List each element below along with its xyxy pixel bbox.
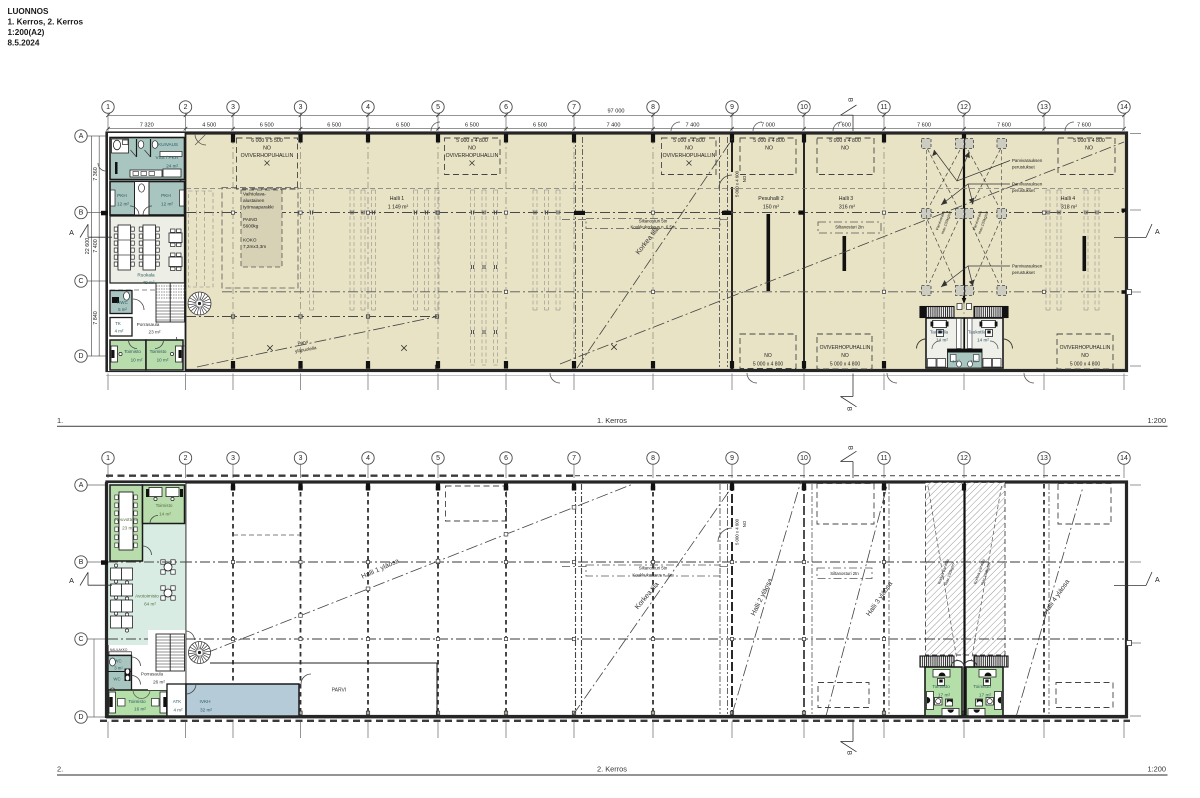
svg-text:5 000 x 4 800: 5 000 x 4 800 [829, 138, 861, 144]
svg-text:7,2mx3,3m: 7,2mx3,3m [243, 244, 266, 249]
svg-text:5 000 x 4 800: 5 000 x 4 800 [1070, 362, 1101, 368]
svg-text:5600kg: 5600kg [243, 224, 259, 229]
svg-text:Toimisto: Toimisto [932, 684, 950, 690]
svg-text:Vaihtolava-: Vaihtolava- [243, 192, 267, 197]
svg-text:12: 12 [960, 455, 968, 462]
svg-text:5 000 x 4 800: 5 000 x 4 800 [753, 138, 785, 144]
svg-text:24 m²: 24 m² [166, 164, 178, 169]
svg-text:PKH: PKH [117, 193, 127, 198]
svg-text:Pesuhalli 2: Pesuhalli 2 [758, 196, 783, 202]
svg-text:Toimisto: Toimisto [124, 349, 141, 354]
svg-text:NO: NO [685, 146, 693, 152]
svg-text:5 000 x 4 800: 5 000 x 4 800 [830, 362, 861, 368]
svg-text:5 000 x 4 600: 5 000 x 4 600 [735, 170, 740, 197]
svg-text:14: 14 [1120, 104, 1128, 111]
svg-text:6 500: 6 500 [260, 122, 274, 128]
svg-text:Ruokala: Ruokala [137, 273, 155, 278]
svg-text:Siltanosturi 5tn: Siltanosturi 5tn [639, 566, 668, 571]
svg-text:Toimisto: Toimisto [973, 684, 991, 690]
svg-text:5 000 x 4 800: 5 000 x 4 800 [753, 362, 784, 368]
svg-text:PARVI: PARVI [332, 688, 347, 694]
svg-text:22 600: 22 600 [85, 238, 91, 255]
svg-text:Porrasaula: Porrasaula [137, 322, 160, 327]
svg-text:1:200: 1:200 [1148, 765, 1167, 774]
svg-text:1 149 m²: 1 149 m² [388, 205, 409, 211]
svg-text:Halli 1: Halli 1 [390, 196, 405, 202]
svg-text:7 600: 7 600 [917, 122, 931, 128]
svg-text:OVIVERHOPUHALLIN: OVIVERHOPUHALLIN [446, 153, 499, 159]
svg-text:13: 13 [1040, 104, 1048, 111]
svg-text:13: 13 [1040, 455, 1048, 462]
svg-text:VSS / PKH: VSS / PKH [156, 155, 178, 160]
svg-text:6 000 x 5 500: 6 000 x 5 500 [251, 138, 283, 144]
svg-text:4 500: 4 500 [202, 122, 216, 128]
svg-text:HWC: HWC [117, 300, 128, 305]
svg-text:6: 6 [504, 104, 508, 111]
svg-text:C: C [79, 278, 84, 285]
svg-text:10 m²: 10 m² [157, 358, 169, 363]
svg-text:23 m²: 23 m² [149, 330, 161, 335]
svg-text:1. Kerros, 2. Kerros: 1. Kerros, 2. Kerros [8, 18, 84, 27]
svg-text:OVIVERHOPUHALLIN: OVIVERHOPUHALLIN [241, 153, 294, 159]
svg-text:5 000 x 4 800: 5 000 x 4 800 [673, 138, 705, 144]
svg-text:NO: NO [764, 353, 772, 359]
svg-text:2: 2 [184, 104, 188, 111]
svg-text:318 m²: 318 m² [1061, 205, 1077, 211]
svg-text:17 m²: 17 m² [979, 693, 992, 699]
svg-text:Halli 3: Halli 3 [839, 196, 854, 202]
svg-text:7 400: 7 400 [93, 239, 99, 253]
svg-text:Siltanosturi 2tn: Siltanosturi 2tn [830, 571, 859, 576]
svg-text:16 m²: 16 m² [134, 707, 146, 712]
svg-text:64 m²: 64 m² [144, 602, 156, 607]
svg-text:9: 9 [730, 455, 734, 462]
svg-text:3: 3 [299, 455, 303, 462]
svg-text:Toimisto: Toimisto [156, 503, 173, 508]
svg-text:OVIVERHOPUHALLIN: OVIVERHOPUHALLIN [1060, 345, 1111, 351]
svg-text:B: B [846, 407, 853, 411]
svg-text:2. Kerros: 2. Kerros [597, 765, 627, 774]
svg-text:Halli 4: Halli 4 [1061, 196, 1076, 202]
svg-text:A: A [69, 228, 74, 237]
svg-text:B: B [847, 446, 854, 450]
svg-text:7 600: 7 600 [997, 122, 1011, 128]
svg-text:2: 2 [184, 455, 188, 462]
svg-text:4: 4 [366, 455, 370, 462]
svg-text:Parvivarauksen: Parvivarauksen [1012, 158, 1043, 163]
svg-text:49 m²: 49 m² [143, 280, 155, 285]
svg-text:B: B [79, 559, 84, 566]
svg-text:NO: NO [841, 353, 849, 359]
svg-text:3: 3 [231, 455, 235, 462]
svg-text:32 m²: 32 m² [200, 708, 212, 713]
svg-text:NO: NO [1085, 146, 1093, 152]
svg-text:NAULAKKO: NAULAKKO [110, 648, 128, 652]
svg-text:5: 5 [436, 455, 440, 462]
svg-text:NO: NO [468, 146, 476, 152]
svg-text:14 m²: 14 m² [936, 338, 948, 343]
svg-text:Neuvottelu: Neuvottelu [115, 517, 137, 522]
svg-text:5 000 x 4 800: 5 000 x 4 800 [456, 138, 488, 144]
svg-text:7 600: 7 600 [837, 122, 851, 128]
svg-text:150 m²: 150 m² [763, 205, 779, 211]
svg-text:7 840: 7 840 [93, 311, 99, 325]
svg-text:14 m²: 14 m² [159, 512, 171, 517]
svg-text:Koukkukorkeus n. 6m: Koukkukorkeus n. 6m [632, 573, 674, 578]
svg-text:Porrasaula: Porrasaula [141, 672, 164, 677]
svg-text:NO: NO [742, 175, 747, 182]
svg-text:10: 10 [800, 104, 808, 111]
svg-text:C: C [79, 636, 84, 643]
svg-text:1:200(A2): 1:200(A2) [8, 28, 45, 37]
svg-text:Siltanosturi 5tn: Siltanosturi 5tn [639, 219, 668, 224]
svg-text:6 500: 6 500 [396, 122, 410, 128]
svg-text:5 m²: 5 m² [118, 307, 127, 312]
svg-text:B: B [847, 98, 854, 102]
svg-text:12: 12 [960, 104, 968, 111]
svg-text:8: 8 [651, 455, 655, 462]
svg-text:7 000: 7 000 [761, 122, 775, 128]
svg-text:11: 11 [880, 104, 887, 111]
svg-text:7: 7 [572, 104, 576, 111]
svg-text:10: 10 [800, 455, 808, 462]
svg-text:alustainen: alustainen [243, 198, 265, 203]
svg-text:4 m²: 4 m² [115, 329, 124, 334]
svg-text:perustukset: perustukset [1012, 188, 1035, 193]
svg-text:316 m²: 316 m² [839, 205, 855, 211]
svg-text:B: B [846, 751, 853, 755]
svg-text:1.: 1. [57, 416, 63, 425]
svg-text:7 400: 7 400 [607, 122, 621, 128]
svg-text:WC: WC [113, 677, 120, 682]
svg-text:NO: NO [765, 146, 773, 152]
svg-text:Toimisto: Toimisto [150, 349, 167, 354]
svg-text:PAINO: PAINO [243, 217, 258, 222]
svg-text:3 m²: 3 m² [114, 666, 123, 671]
svg-text:Toimisto: Toimisto [128, 699, 146, 704]
svg-text:4: 4 [366, 104, 370, 111]
svg-text:B: B [79, 210, 84, 217]
svg-text:9: 9 [730, 104, 734, 111]
svg-text:perustukset: perustukset [1012, 165, 1035, 170]
svg-text:A: A [69, 576, 74, 585]
svg-text:17 m²: 17 m² [938, 693, 951, 699]
svg-text:Avotoimisto: Avotoimisto [135, 594, 159, 599]
svg-text:KOKO: KOKO [243, 238, 257, 243]
svg-text:3: 3 [231, 104, 235, 111]
svg-text:6 500: 6 500 [533, 122, 547, 128]
svg-text:12 m²: 12 m² [117, 202, 129, 207]
svg-text:14 m²: 14 m² [977, 338, 989, 343]
svg-text:5 000 x 4 600: 5 000 x 4 600 [735, 518, 740, 545]
svg-text:7 320: 7 320 [140, 122, 154, 128]
svg-text:12 m²: 12 m² [161, 202, 173, 207]
svg-text:97 000: 97 000 [607, 109, 624, 115]
svg-text:5 000 x 4 800: 5 000 x 4 800 [1073, 138, 1105, 144]
svg-text:8: 8 [651, 104, 655, 111]
svg-text:työmaaparakki: työmaaparakki [243, 205, 273, 210]
svg-text:6 500: 6 500 [327, 122, 341, 128]
svg-text:7 400: 7 400 [686, 122, 700, 128]
svg-text:1: 1 [106, 455, 110, 462]
svg-text:A: A [1155, 577, 1160, 584]
svg-text:11: 11 [880, 455, 887, 462]
svg-text:perustukset: perustukset [1012, 270, 1035, 275]
svg-text:D: D [79, 353, 84, 360]
svg-text:WC: WC [114, 659, 121, 664]
svg-text:A: A [79, 133, 84, 140]
svg-text:7 600: 7 600 [1077, 122, 1091, 128]
svg-text:6 500: 6 500 [465, 122, 479, 128]
svg-text:1:200: 1:200 [1148, 416, 1167, 425]
svg-text:TK: TK [115, 321, 121, 326]
svg-text:D: D [79, 714, 84, 721]
svg-text:14: 14 [1120, 455, 1128, 462]
svg-text:Taukotila: Taukotila [968, 330, 987, 335]
svg-text:4 m²: 4 m² [174, 708, 184, 713]
svg-text:1. Kerros: 1. Kerros [597, 416, 627, 425]
svg-text:OVIVERHOPUHALLIN: OVIVERHOPUHALLIN [663, 153, 716, 159]
svg-text:8.5.2024: 8.5.2024 [8, 39, 40, 48]
svg-text:NO: NO [263, 146, 271, 152]
svg-text:Taukotila: Taukotila [930, 330, 949, 335]
svg-text:NO: NO [1081, 353, 1089, 359]
svg-text:IVKH: IVKH [200, 699, 211, 704]
svg-text:Parvivarauksen: Parvivarauksen [1012, 264, 1043, 269]
svg-text:1: 1 [106, 104, 110, 111]
svg-text:KUIVAUS: KUIVAUS [158, 142, 178, 147]
svg-text:OVIVERHOPUHALLIN: OVIVERHOPUHALLIN [820, 345, 871, 351]
svg-text:3: 3 [299, 104, 303, 111]
svg-text:NO: NO [841, 146, 849, 152]
svg-text:10 m²: 10 m² [131, 358, 143, 363]
svg-text:Parvivarauksen: Parvivarauksen [1012, 182, 1043, 187]
svg-text:5: 5 [436, 104, 440, 111]
svg-text:A: A [1155, 229, 1160, 236]
svg-text:A: A [79, 482, 84, 489]
svg-text:7 360: 7 360 [93, 167, 99, 181]
svg-text:23 m²: 23 m² [122, 526, 134, 531]
svg-text:26 m²: 26 m² [153, 680, 165, 685]
svg-text:LUONNOS: LUONNOS [8, 7, 49, 16]
svg-text:2.: 2. [57, 765, 63, 774]
svg-text:Siltanosturi 2tn: Siltanosturi 2tn [835, 225, 864, 230]
svg-text:7: 7 [572, 455, 576, 462]
svg-text:NO: NO [742, 520, 747, 527]
svg-text:ATK: ATK [173, 699, 181, 704]
svg-text:PKH: PKH [161, 193, 171, 198]
svg-text:6: 6 [504, 455, 508, 462]
